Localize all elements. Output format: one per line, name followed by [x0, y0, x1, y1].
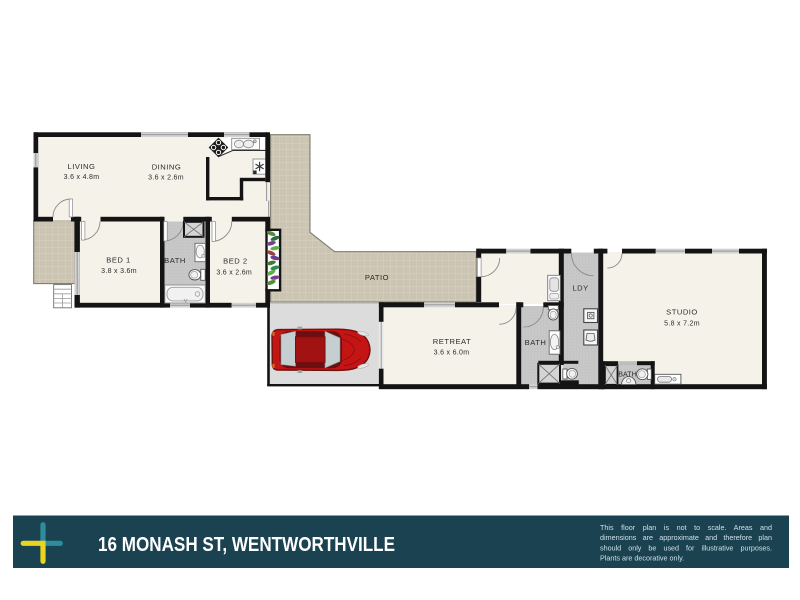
svg-text:RETREAT: RETREAT [433, 337, 471, 346]
svg-text:3.6 x 4.8m: 3.6 x 4.8m [64, 174, 100, 181]
svg-text:Plants are decorative only.: Plants are decorative only. [600, 554, 684, 563]
svg-text:dimensions are approximate and: dimensions are approximate and therefore… [600, 533, 772, 542]
svg-text:5.8 x 7.2m: 5.8 x 7.2m [664, 321, 700, 328]
svg-text:16 MONASH ST, WENTWORTHVILLE: 16 MONASH ST, WENTWORTHVILLE [98, 533, 395, 556]
svg-text:BATH: BATH [525, 338, 547, 347]
svg-text:STUDIO: STUDIO [666, 308, 698, 317]
svg-text:3.8 x 3.6m: 3.8 x 3.6m [101, 268, 137, 275]
svg-text:LDY: LDY [572, 284, 588, 293]
svg-text:This floor plan is not to scal: This floor plan is not to scale. Areas a… [600, 523, 772, 532]
svg-text:BED 2: BED 2 [223, 256, 247, 265]
svg-text:3.6 x 2.6m: 3.6 x 2.6m [148, 174, 184, 181]
svg-text:BATH: BATH [618, 371, 636, 379]
svg-text:3.6 x 6.0m: 3.6 x 6.0m [434, 350, 470, 357]
svg-text:3.6 x 2.6m: 3.6 x 2.6m [216, 269, 252, 276]
svg-text:DINING: DINING [152, 162, 182, 171]
svg-text:BED 1: BED 1 [106, 255, 130, 264]
svg-text:LIVING: LIVING [68, 162, 96, 171]
svg-text:PATIO: PATIO [365, 273, 389, 282]
svg-text:BATH: BATH [164, 256, 186, 265]
svg-text:should only be used for illust: should only be used for illustrative pur… [600, 543, 772, 552]
